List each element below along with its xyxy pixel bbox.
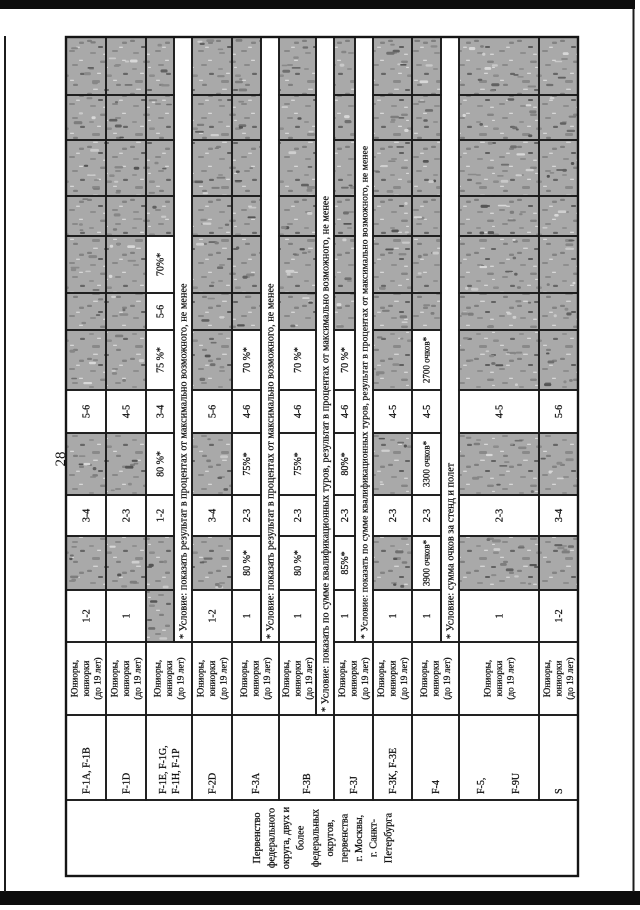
svg-text:3-4: 3-4 <box>155 405 166 418</box>
svg-text:F-3J: F-3J <box>349 776 360 794</box>
svg-text:85%*: 85%* <box>340 551 351 574</box>
svg-text:* Условие: показать результат: * Условие: показать результат в процента… <box>265 283 276 639</box>
svg-text:Юниоры,: Юниоры, <box>377 660 387 697</box>
svg-text:F-1D: F-1D <box>122 773 133 794</box>
svg-text:г. Санкт-: г. Санкт- <box>369 818 380 857</box>
svg-text:(до 19 лет): (до 19 лет) <box>304 657 315 699</box>
svg-text:1: 1 <box>340 614 351 619</box>
svg-text:2-3: 2-3 <box>121 509 132 522</box>
svg-text:Юниоры,: Юниоры, <box>197 660 207 697</box>
svg-text:Юниоры,: Юниоры, <box>543 660 553 697</box>
svg-text:юниорки: юниорки <box>555 661 565 697</box>
svg-text:2-3: 2-3 <box>340 509 351 522</box>
svg-text:(до 19 лет): (до 19 лет) <box>506 657 517 699</box>
svg-text:округов,: округов, <box>325 820 336 857</box>
svg-text:1: 1 <box>242 614 253 619</box>
svg-text:юниорки: юниорки <box>208 661 218 697</box>
svg-text:80 %*: 80 %* <box>242 550 253 576</box>
svg-text:Юниоры,: Юниоры, <box>420 660 430 697</box>
svg-text:Юниоры,: Юниоры, <box>484 660 494 697</box>
svg-text:80 %*: 80 %* <box>293 550 304 576</box>
svg-text:2-3: 2-3 <box>293 509 304 522</box>
svg-text:юниорки: юниорки <box>294 661 304 697</box>
svg-text:1-2: 1-2 <box>155 509 166 522</box>
svg-text:* Условие: сумма очков за сте: * Условие: сумма очков за стенд и полет <box>445 462 456 639</box>
svg-text:F-3B: F-3B <box>302 773 313 794</box>
svg-text:юниорки: юниорки <box>122 661 132 697</box>
svg-text:2700 очков*: 2700 очков* <box>422 336 432 383</box>
svg-text:(до 19 лет): (до 19 лет) <box>262 657 273 699</box>
svg-text:(до 19 лет): (до 19 лет) <box>219 657 230 699</box>
svg-text:2-3: 2-3 <box>494 509 505 522</box>
svg-text:юниорки: юниорки <box>495 661 505 697</box>
svg-text:3-4: 3-4 <box>554 509 565 522</box>
svg-text:федерального: федерального <box>267 808 278 868</box>
svg-text:5-6: 5-6 <box>155 305 166 318</box>
svg-text:F-9U: F-9U <box>511 772 522 794</box>
svg-text:(до 19 лет): (до 19 лет) <box>176 657 187 699</box>
svg-text:75%*: 75%* <box>293 452 304 475</box>
svg-text:юниорки: юниорки <box>252 661 262 697</box>
svg-text:70%*: 70%* <box>155 253 166 276</box>
svg-text:F-1A, F-1B: F-1A, F-1B <box>82 747 93 794</box>
svg-text:4-5: 4-5 <box>422 405 433 418</box>
svg-text:F-3K, F-3E: F-3K, F-3E <box>388 748 399 794</box>
svg-text:г. Москвы,: г. Москвы, <box>354 815 365 861</box>
svg-text:F-4: F-4 <box>431 780 442 794</box>
svg-text:1: 1 <box>388 614 399 619</box>
svg-text:(до 19 лет): (до 19 лет) <box>133 657 144 699</box>
svg-text:3300 очков*: 3300 очков* <box>422 440 432 487</box>
svg-text:(до 19 лет): (до 19 лет) <box>399 657 410 699</box>
svg-text:Юниоры,: Юниоры, <box>111 660 121 697</box>
svg-text:F-3A: F-3A <box>251 772 262 794</box>
svg-text:Юниоры,: Юниоры, <box>282 660 292 697</box>
svg-text:Юниоры,: Юниоры, <box>240 660 250 697</box>
svg-text:юниорки: юниорки <box>82 661 92 697</box>
svg-text:F-2D: F-2D <box>208 773 219 794</box>
svg-text:юниорки: юниорки <box>389 661 399 697</box>
svg-text:более: более <box>296 825 307 850</box>
svg-text:* Условие: показать результат: * Условие: показать результат в процента… <box>178 283 189 639</box>
svg-text:юниорки: юниорки <box>350 661 360 697</box>
svg-text:3900 очков*: 3900 очков* <box>422 539 432 586</box>
svg-text:70 %*: 70 %* <box>293 347 304 373</box>
svg-text:4-6: 4-6 <box>340 405 351 418</box>
svg-text:* Условие: показать по сумме к: * Условие: показать по сумме квалификаци… <box>359 146 370 639</box>
svg-text:F-5,: F-5, <box>476 778 487 794</box>
svg-text:Юниоры,: Юниоры, <box>338 660 348 697</box>
svg-text:75 %*: 75 %* <box>155 347 166 373</box>
svg-text:Петербурга: Петербурга <box>383 812 394 863</box>
svg-text:2-3: 2-3 <box>388 509 399 522</box>
svg-text:5-6: 5-6 <box>554 405 565 418</box>
svg-text:70 %*: 70 %* <box>242 347 253 373</box>
svg-text:80 %*: 80 %* <box>155 451 166 477</box>
svg-text:1-2: 1-2 <box>554 609 565 622</box>
svg-text:1: 1 <box>293 614 304 619</box>
svg-text:округа, двух и: округа, двух и <box>281 806 292 869</box>
svg-text:1: 1 <box>121 614 132 619</box>
svg-text:(до 19 лет): (до 19 лет) <box>442 657 453 699</box>
svg-text:4-6: 4-6 <box>242 405 253 418</box>
svg-text:80%*: 80%* <box>340 452 351 475</box>
svg-text:70 %*: 70 %* <box>340 347 351 373</box>
svg-text:F-1H, F-1P: F-1H, F-1P <box>171 748 182 794</box>
svg-text:3-4: 3-4 <box>81 509 92 522</box>
svg-text:юниорки: юниорки <box>165 661 175 697</box>
svg-text:(до 19 лет): (до 19 лет) <box>360 657 371 699</box>
svg-text:первенства: первенства <box>340 813 351 862</box>
svg-text:5-6: 5-6 <box>81 405 92 418</box>
svg-text:1: 1 <box>494 614 505 619</box>
svg-text:федеральных: федеральных <box>310 808 321 867</box>
svg-text:Юниоры,: Юниоры, <box>154 660 164 697</box>
svg-text:(до 19 лет): (до 19 лет) <box>565 657 576 699</box>
svg-text:2-3: 2-3 <box>242 509 253 522</box>
svg-text:(до 19 лет): (до 19 лет) <box>93 657 104 699</box>
svg-text:2-3: 2-3 <box>422 509 433 522</box>
svg-text:75%*: 75%* <box>242 452 253 475</box>
svg-text:1: 1 <box>422 614 433 619</box>
svg-text:Первенство: Первенство <box>252 812 263 863</box>
svg-text:Юниоры,: Юниоры, <box>71 660 81 697</box>
svg-text:5-6: 5-6 <box>207 405 218 418</box>
svg-text:юниорки: юниорки <box>432 661 442 697</box>
svg-text:1-2: 1-2 <box>207 609 218 622</box>
svg-text:1-2: 1-2 <box>81 609 92 622</box>
svg-text:4-5: 4-5 <box>388 405 399 418</box>
svg-text:4-5: 4-5 <box>494 405 505 418</box>
svg-text:3-4: 3-4 <box>207 509 218 522</box>
svg-text:4-6: 4-6 <box>293 405 304 418</box>
svg-text:F-1E, F-1G,: F-1E, F-1G, <box>158 745 169 794</box>
svg-text:S: S <box>554 788 565 794</box>
svg-text:4-5: 4-5 <box>121 405 132 418</box>
svg-text:* Условие: показать по сумме: * Условие: показать по сумме квалификаци… <box>320 196 331 712</box>
